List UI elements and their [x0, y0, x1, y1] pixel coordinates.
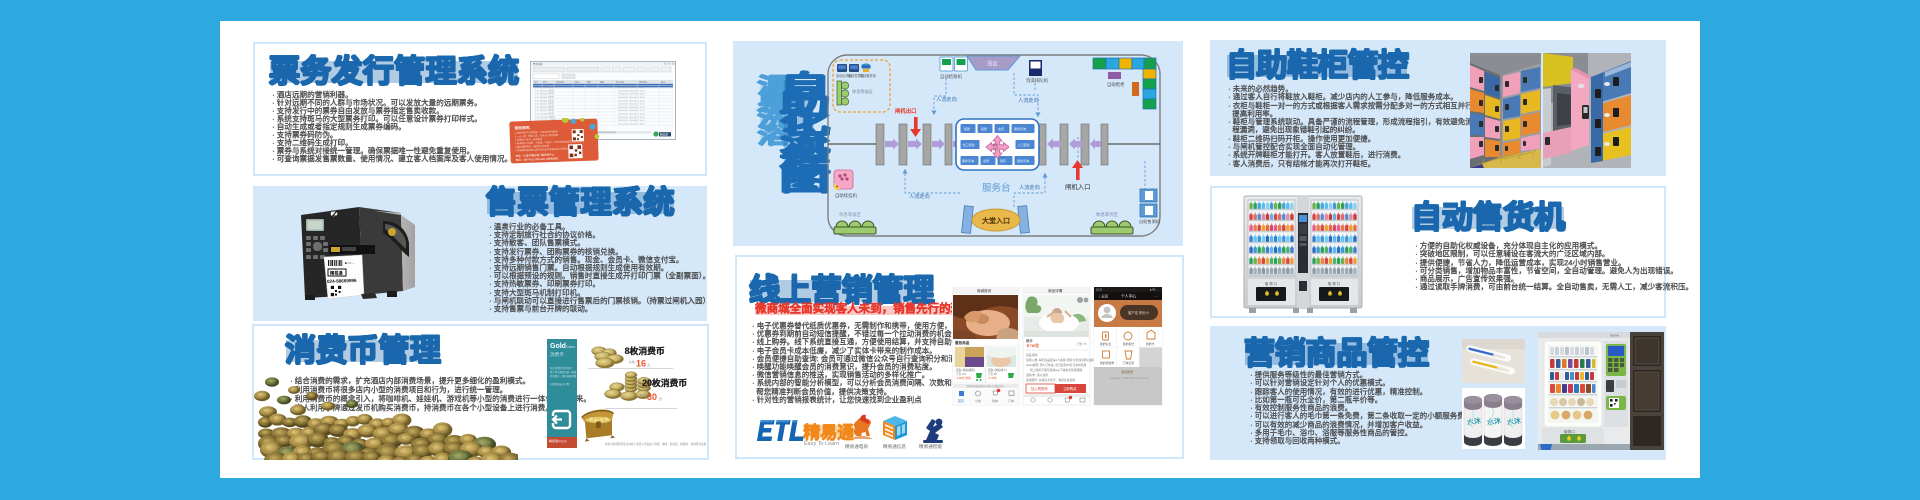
- svg-text:迎宾: 迎宾: [983, 158, 989, 163]
- svg-text:Gold: Gold: [550, 343, 566, 350]
- svg-text:桑拿: 桑拿: [1026, 338, 1033, 343]
- svg-text:人流走向: 人流走向: [936, 95, 957, 103]
- svg-text:个人中心: 个人中心: [1121, 294, 1136, 299]
- svg-text:持消费币，随时便捷消费: 持消费币，随时便捷消费: [550, 374, 577, 378]
- svg-text:取 物 口: 取 物 口: [1265, 281, 1277, 286]
- svg-text:精易通智能: 精易通智能: [919, 443, 942, 450]
- svg-text:16: 16: [636, 359, 646, 369]
- svg-text:结合消费的需求场景: 结合消费的需求场景: [550, 366, 572, 370]
- svg-text:立即购买: 立即购买: [1063, 386, 1077, 391]
- svg-text:使用入数: 每份商品最多2人使用 (须补全另加手牌以通用): 使用入数: 每份商品最多2人使用 (须补全另加手牌以通用): [1026, 358, 1096, 362]
- svg-text:休息等候区: 休息等候区: [839, 211, 862, 218]
- svg-text:〈 返回: 〈 返回: [1097, 294, 1109, 299]
- svg-text:分类: 分类: [975, 398, 981, 403]
- svg-text:failed说明: 周1-订单班 (次日起到30天订单内结算: failed说明: 周1-订单班 (次日起到30天订单内结算: [1026, 363, 1087, 367]
- svg-text:精易通信息: 精易通信息: [883, 443, 906, 450]
- svg-text:温泉+洗浴(通票): 温泉+洗浴(通票): [956, 368, 975, 372]
- svg-text:寄存: 寄存: [1000, 158, 1006, 163]
- svg-text:￥98/位 抢购: ￥98/位 抢购: [956, 376, 971, 380]
- svg-text:元: 元: [659, 397, 663, 401]
- svg-text:￥78/位: ￥78/位: [1026, 343, 1039, 348]
- svg-text:我的信息: 我的信息: [1100, 342, 1111, 346]
- svg-text:大厅: 大厅: [993, 146, 999, 151]
- svg-text:客户名 积分:0: 客户名 积分:0: [1128, 310, 1149, 315]
- svg-text:人流走向: 人流走向: [909, 192, 930, 200]
- svg-text:精易通: 精易通: [803, 422, 854, 442]
- svg-text:已售:75: 已售:75: [1077, 342, 1087, 346]
- svg-text:Easy To Learn: Easy To Learn: [804, 441, 839, 447]
- svg-text:自助售票机: 自助售票机: [1139, 218, 1161, 225]
- svg-text:■ == --: ■ == --: [345, 261, 355, 265]
- svg-text:自助鞋柜: 自助鞋柜: [1107, 81, 1125, 88]
- svg-text:最热商品: 最热商品: [955, 340, 970, 345]
- svg-text:Coins: Coins: [566, 345, 575, 349]
- svg-text:商城首页: 商城首页: [977, 288, 992, 293]
- svg-text:取 物 口: 取 物 口: [1328, 281, 1340, 286]
- svg-text:精易通: 精易通: [549, 438, 558, 443]
- svg-text:自动结账机: 自动结账机: [940, 73, 963, 80]
- svg-text:20枚消费币: 20枚消费币: [642, 377, 687, 388]
- svg-text:结账: 结账: [964, 126, 970, 131]
- svg-text:订单: 订单: [1008, 398, 1014, 403]
- svg-text:精易通电商: 精易通电商: [845, 443, 868, 450]
- svg-text:⋯: ⋯: [1154, 295, 1157, 299]
- svg-text:服务问询: 服务问询: [1017, 158, 1029, 163]
- svg-text:人流走向: 人流走向: [1019, 183, 1040, 191]
- svg-text:充值: 充值: [998, 126, 1004, 131]
- svg-text:￥78/位: ￥78/位: [988, 376, 997, 380]
- svg-text:购物: 购物: [992, 398, 998, 403]
- svg-text:闸机入口: 闸机入口: [1065, 182, 1091, 191]
- svg-text:退出登录: 退出登录: [1121, 369, 1133, 374]
- svg-text:消费币: 消费币: [550, 351, 564, 358]
- svg-text:商品详情: 商品详情: [1048, 288, 1063, 293]
- svg-text:服务问询: 服务问询: [962, 158, 974, 163]
- svg-text:温泉+洗浴(单人): 温泉+洗浴(单人): [988, 368, 1007, 372]
- svg-text:使用服务: 免排队手金行。购票直接使用: 使用服务: 免排队手金行。购票直接使用: [1026, 378, 1075, 382]
- svg-text:我的积分: 我的积分: [1123, 342, 1134, 346]
- svg-text:退款/重: 需以退款: 退款/重: 需以退款: [1026, 373, 1048, 377]
- svg-text:024-88669996: 024-88669996: [327, 278, 357, 284]
- svg-text:票务系统: 票务系统: [533, 62, 543, 66]
- svg-text:服务问询: 服务问询: [1014, 126, 1026, 131]
- svg-text:已售:624: 已售:624: [956, 372, 967, 376]
- svg-text:资金可用消费币在店内各个项目小型设备上消费。咖啡、娃娃机、按: 资金可用消费币在店内各个项目小型设备上消费。咖啡、娃娃机、按摩椅、游戏机等设备: [605, 442, 707, 446]
- svg-text:首页: 首页: [958, 398, 964, 403]
- svg-text:闸机出口: 闸机出口: [895, 107, 917, 115]
- svg-text:浴区: 浴区: [987, 60, 999, 68]
- svg-text:方便快捷安全可靠: 方便快捷安全可靠: [550, 382, 570, 386]
- svg-text:自动租赁机: 自动租赁机: [860, 73, 877, 78]
- svg-text:Copyright © 2008-2018 www.etl.: Copyright © 2008-2018 www.etl.com: [1110, 377, 1149, 380]
- svg-text:已售:98: 已售:98: [988, 372, 997, 376]
- svg-text:休息等候区: 休息等候区: [852, 88, 873, 95]
- svg-text:线上购票不留可提前app下单最次到结账期: 线上购票不留可提前app下单最次到结账期: [1030, 368, 1082, 372]
- svg-text:精易通: 精易通: [660, 132, 668, 136]
- svg-text:精易通: 精易通: [330, 269, 343, 276]
- svg-text:泡澡排队机: 泡澡排队机: [1026, 77, 1049, 84]
- svg-text:■ 4G: ■ 4G: [1150, 289, 1155, 292]
- svg-text:元: 元: [647, 364, 651, 368]
- svg-text:我的卡: 我的卡: [1146, 342, 1155, 346]
- svg-text:休息等待区: 休息等待区: [1096, 211, 1119, 218]
- svg-text:使用说明：: 使用说明：: [513, 125, 532, 131]
- svg-text:结账: 结账: [981, 126, 987, 131]
- svg-text:订单记录: 订单记录: [1123, 361, 1134, 365]
- svg-text:我的优惠券: 我的优惠券: [1100, 361, 1114, 365]
- svg-text:大堂入口: 大堂入口: [982, 216, 1010, 225]
- svg-text:自助续挂机: 自助续挂机: [835, 192, 858, 199]
- svg-text:8枚消费币: 8枚消费币: [625, 345, 665, 356]
- svg-text:出口查验: 出口查验: [963, 142, 975, 147]
- svg-text:服务台: 服务台: [982, 182, 1011, 194]
- svg-text:取物口: 取物口: [1564, 429, 1575, 434]
- svg-text:30: 30: [647, 392, 657, 402]
- svg-text:商品详情:: 商品详情:: [1026, 353, 1038, 357]
- svg-text:人流走向: 人流走向: [1018, 96, 1039, 104]
- svg-text:10:21: 10:21: [1096, 289, 1103, 292]
- svg-text:KEXIN: KEXIN: [1610, 334, 1619, 338]
- svg-text:加入购物车: 加入购物车: [1031, 386, 1049, 391]
- svg-text:入口查验: 入口查验: [1018, 142, 1030, 147]
- svg-text:将小型消费项目统一管理: 将小型消费项目统一管理: [550, 370, 577, 374]
